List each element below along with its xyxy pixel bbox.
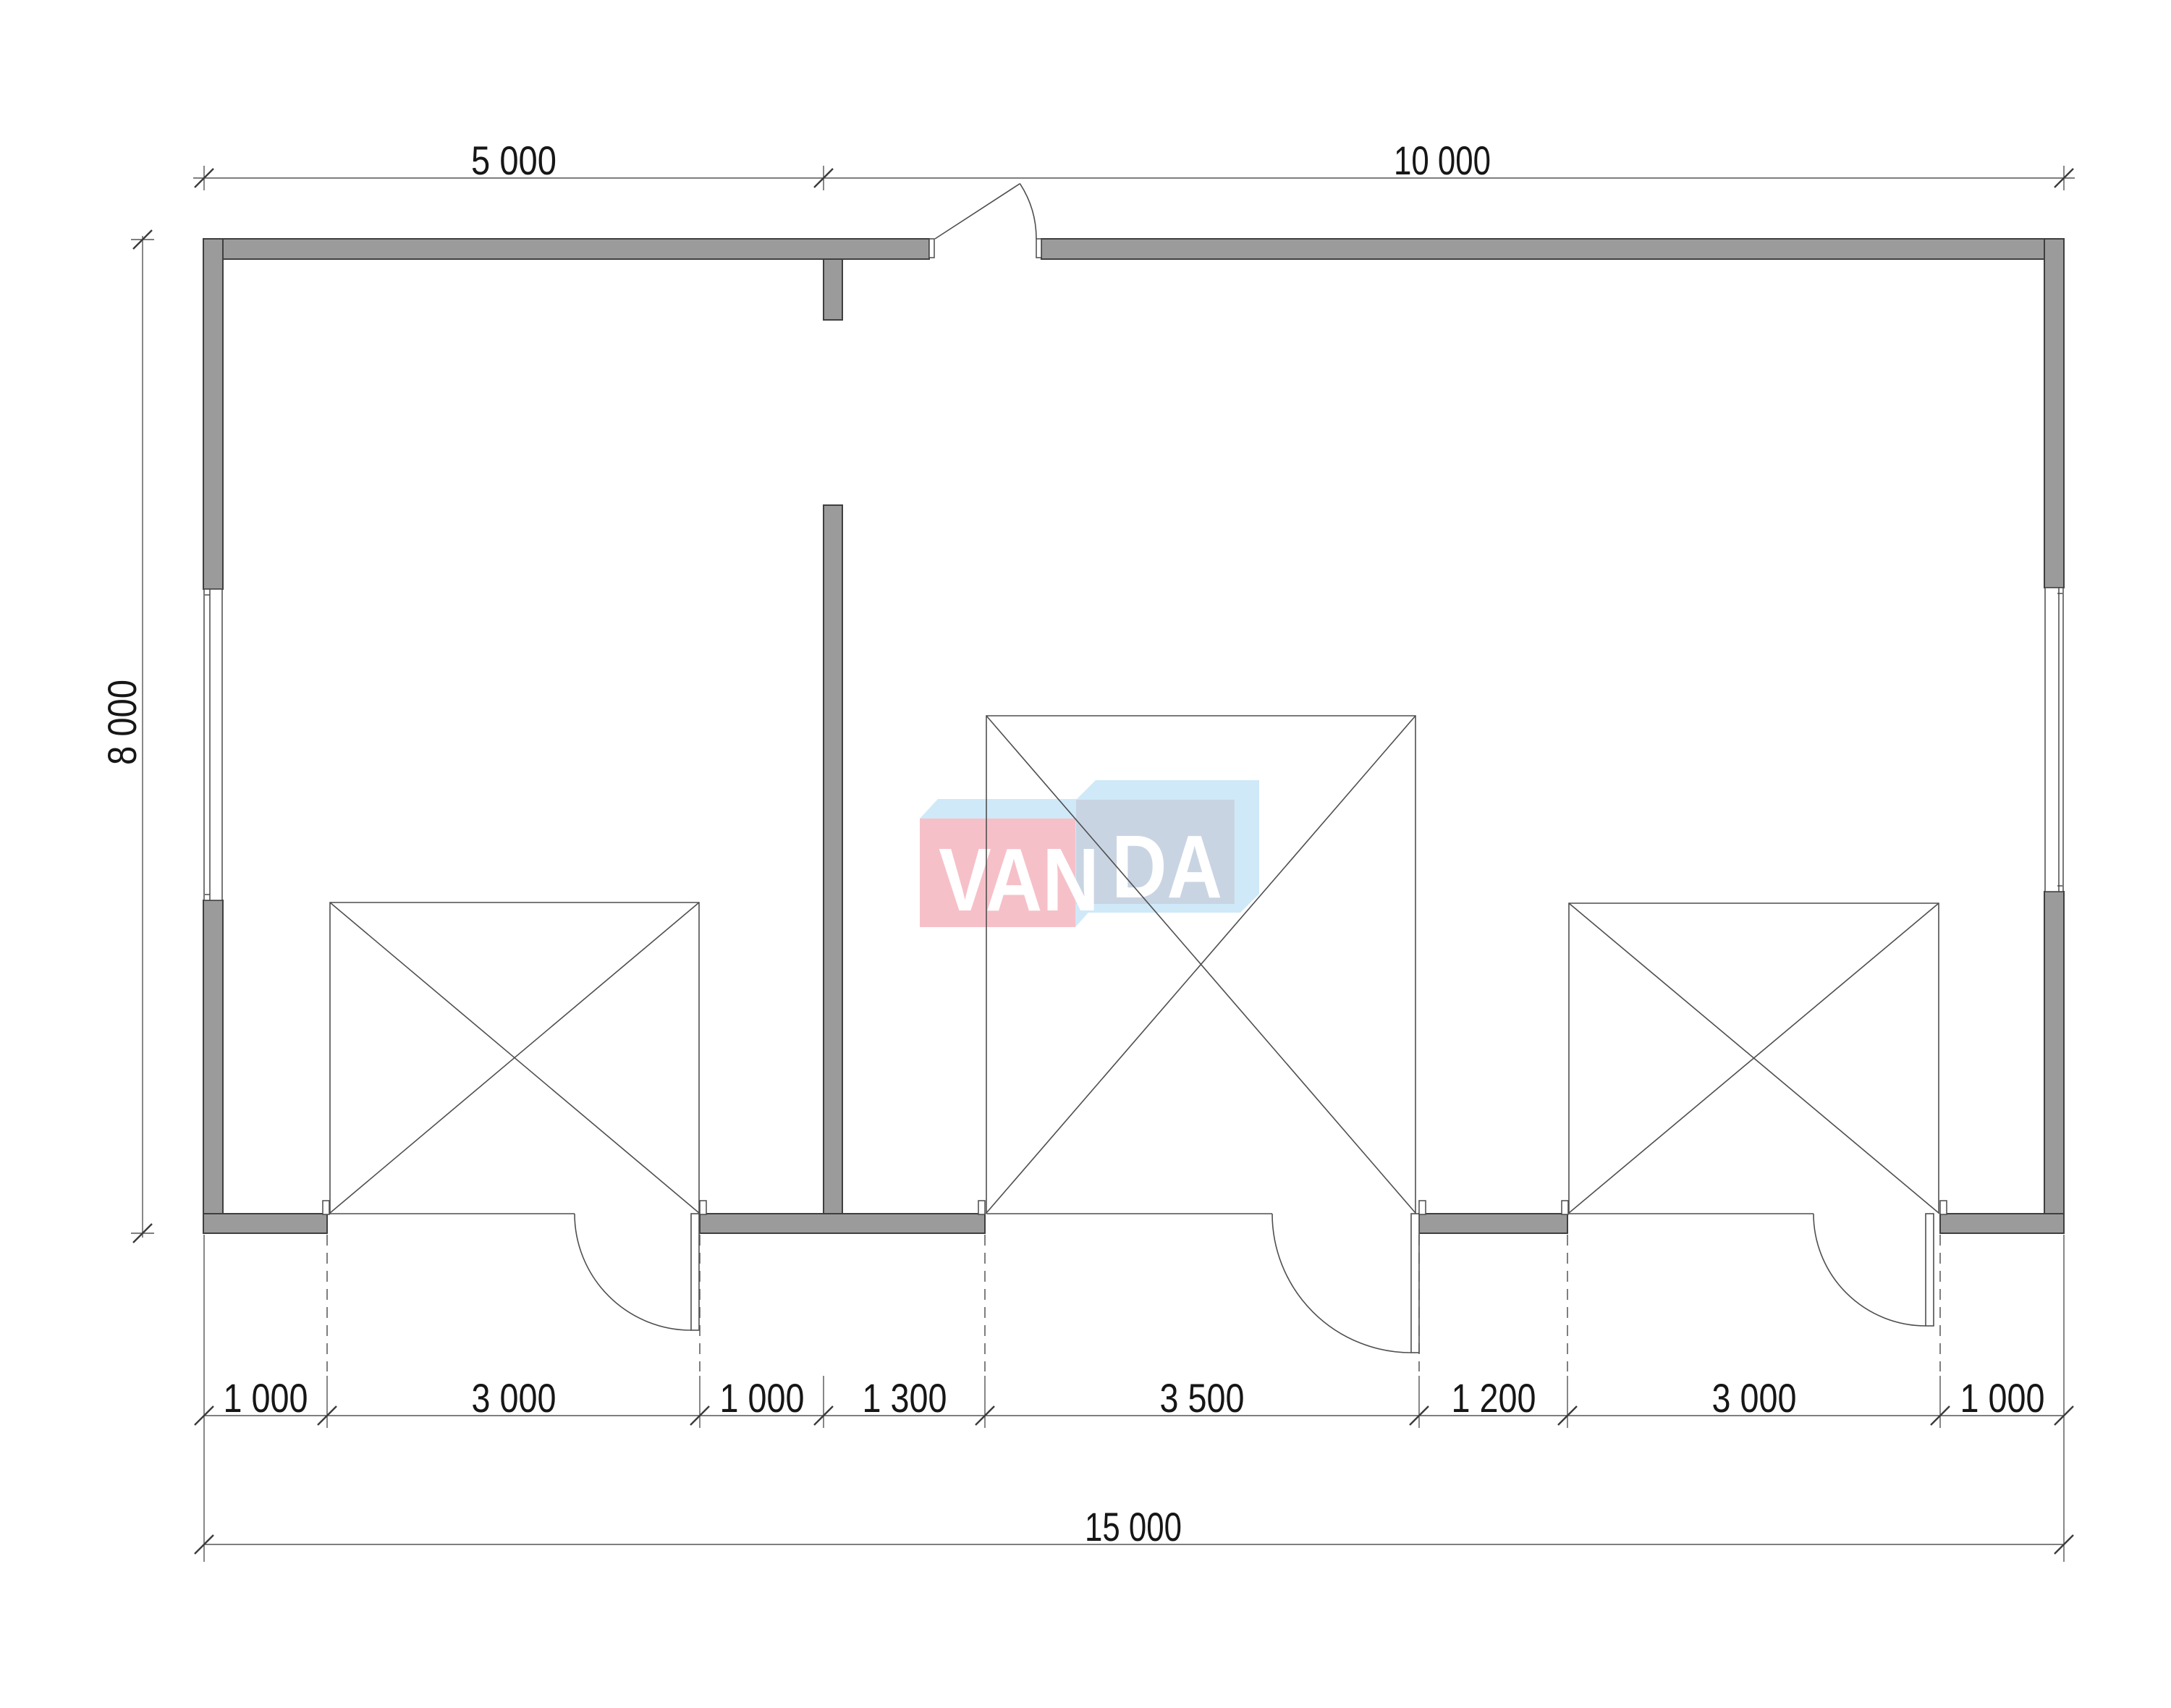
svg-text:5 000: 5 000 — [471, 138, 556, 183]
svg-text:VAN: VAN — [939, 831, 1099, 930]
svg-text:1 300: 1 300 — [863, 1375, 947, 1421]
svg-text:DA: DA — [1112, 818, 1222, 917]
svg-text:10 000: 10 000 — [1394, 138, 1491, 183]
svg-text:1 000: 1 000 — [720, 1375, 805, 1421]
svg-text:1 000: 1 000 — [1960, 1375, 2045, 1421]
svg-text:15 000: 15 000 — [1085, 1504, 1182, 1550]
svg-text:1 200: 1 200 — [1452, 1375, 1536, 1421]
svg-text:1 000: 1 000 — [224, 1375, 308, 1421]
svg-text:8 000: 8 000 — [99, 680, 145, 765]
svg-text:3 500: 3 500 — [1160, 1375, 1245, 1421]
svg-text:3 000: 3 000 — [472, 1375, 556, 1421]
svg-text:3 000: 3 000 — [1712, 1375, 1797, 1421]
